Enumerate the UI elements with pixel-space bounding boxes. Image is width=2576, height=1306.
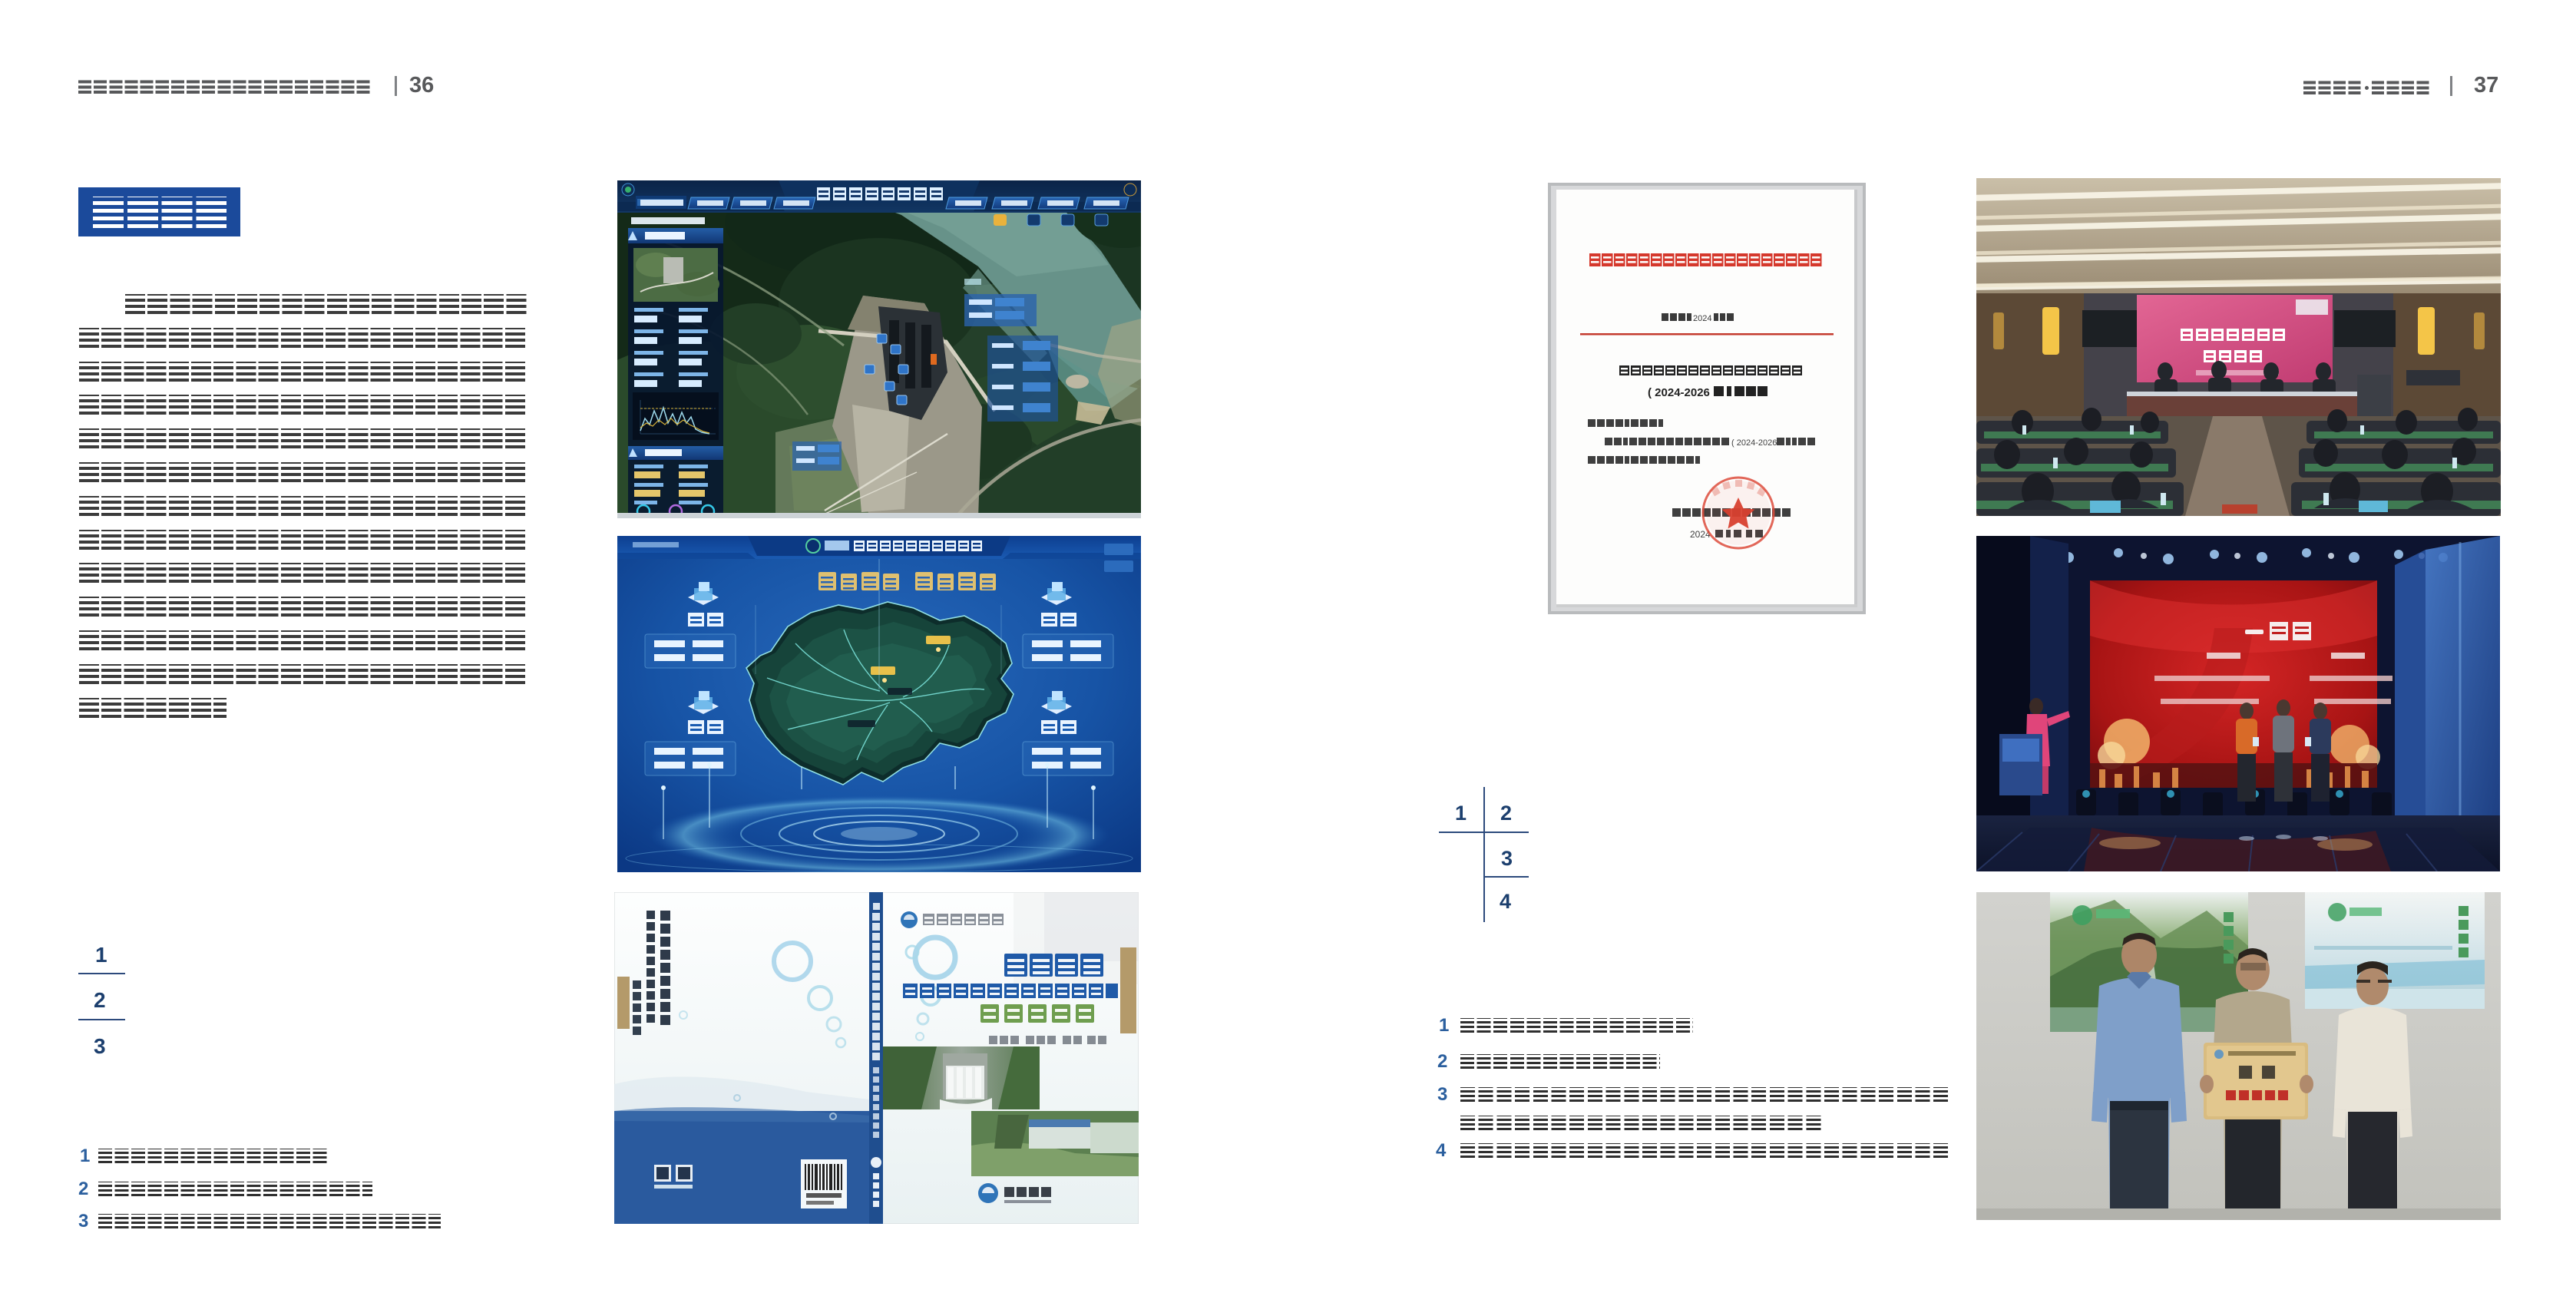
svg-text:( 2024-2026: ( 2024-2026 xyxy=(1648,386,1710,399)
svg-text:( 2024-2026: ( 2024-2026 xyxy=(1731,438,1777,448)
svg-text:2024: 2024 xyxy=(1693,314,1711,323)
